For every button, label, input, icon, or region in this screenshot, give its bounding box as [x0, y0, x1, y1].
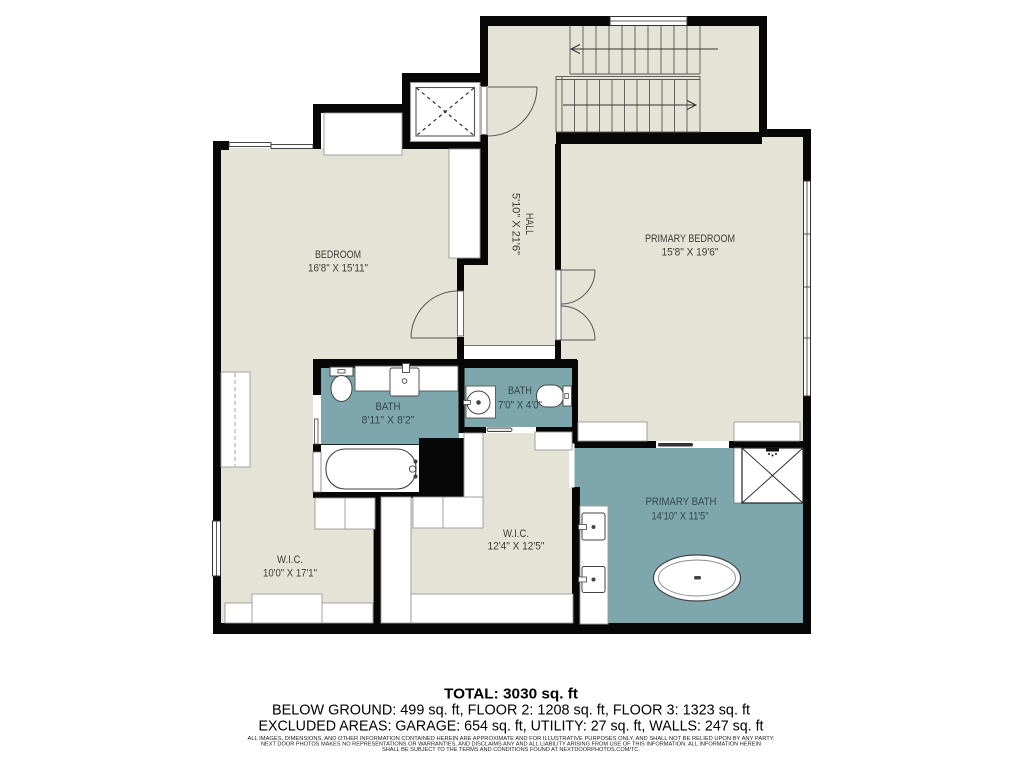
svg-text:W.I.C.: W.I.C.	[277, 554, 303, 566]
svg-text:14'10" X 11'5": 14'10" X 11'5"	[652, 511, 709, 523]
svg-text:BATH: BATH	[508, 385, 532, 397]
svg-text:TOTAL: 3030 sq. ft: TOTAL: 3030 sq. ft	[444, 687, 578, 703]
svg-text:5'10" X 21'6": 5'10" X 21'6"	[510, 193, 522, 255]
svg-text:7'0" X 4'0": 7'0" X 4'0"	[498, 400, 542, 412]
svg-text:12'4" X 12'5": 12'4" X 12'5"	[488, 541, 545, 553]
svg-text:HALL: HALL	[523, 213, 535, 235]
svg-text:BELOW GROUND: 499 sq. ft, FLOO: BELOW GROUND: 499 sq. ft, FLOOR 2: 1208 …	[272, 703, 750, 719]
svg-text:15'8" X 19'6": 15'8" X 19'6"	[662, 247, 719, 259]
svg-text:BEDROOM: BEDROOM	[315, 249, 361, 261]
svg-text:10'0" X 17'1": 10'0" X 17'1"	[263, 568, 317, 580]
svg-text:SHALL BE SUBJECT TO THE TERMS: SHALL BE SUBJECT TO THE TERMS AND CONDIT…	[382, 747, 640, 753]
svg-text:8'11" X 8'2": 8'11" X 8'2"	[362, 415, 415, 427]
svg-text:PRIMARY BATH: PRIMARY BATH	[646, 496, 717, 508]
svg-text:BATH: BATH	[376, 401, 401, 413]
svg-text:PRIMARY BEDROOM: PRIMARY BEDROOM	[645, 233, 735, 245]
svg-text:16'8" X 15'11": 16'8" X 15'11"	[308, 263, 368, 275]
svg-text:W.I.C.: W.I.C.	[503, 528, 529, 540]
svg-text:EXCLUDED AREAS: GARAGE: 654 sq: EXCLUDED AREAS: GARAGE: 654 sq. ft, UTIL…	[259, 719, 764, 735]
